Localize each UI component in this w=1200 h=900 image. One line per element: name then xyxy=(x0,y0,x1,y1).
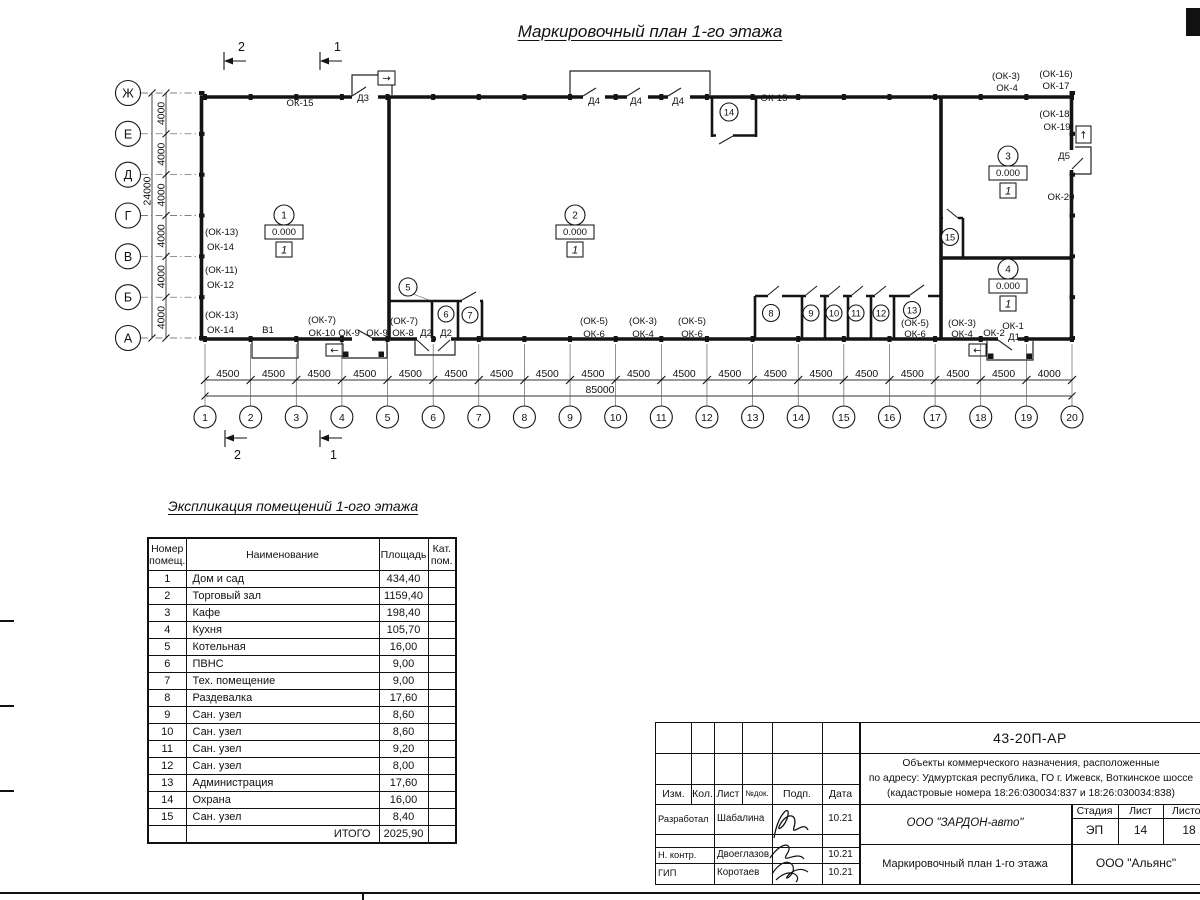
opening-label: Д3 xyxy=(357,93,369,104)
wall-joint-ticks xyxy=(199,91,1075,342)
role-gip-label: ГИП xyxy=(658,864,714,882)
room-schedule-table: Номер помещ. Наименование Площадь Кат. п… xyxy=(147,537,457,844)
porch-post xyxy=(379,352,385,358)
elevation-value: 0.000 xyxy=(996,168,1020,179)
room-category-cell xyxy=(428,809,456,826)
room-number-cell: 2 xyxy=(148,588,186,605)
wall-tick xyxy=(796,94,800,100)
room-number-cell: 8 xyxy=(148,690,186,707)
wall-tick xyxy=(887,94,891,100)
opening-label: (ОК-3) xyxy=(948,318,976,329)
wall-tick xyxy=(887,336,891,342)
axis-number: 5 xyxy=(385,413,391,424)
porch-d5 xyxy=(1075,147,1091,174)
wall-tick xyxy=(1070,173,1076,177)
room-category-cell xyxy=(428,673,456,690)
opening-label: Д2 xyxy=(440,328,452,339)
dim-total-value: 85000 xyxy=(586,385,615,396)
axis-number: 6 xyxy=(430,413,436,424)
axis-number: 2 xyxy=(248,413,254,424)
room-number-cell: 11 xyxy=(148,741,186,758)
room-category-cell xyxy=(428,622,456,639)
room-category-cell xyxy=(428,724,456,741)
dim-label: 4000 xyxy=(157,142,168,165)
sheet-col-header: Лист xyxy=(714,784,742,804)
section-number: 2 xyxy=(234,448,241,462)
opening-label: ОК-6 xyxy=(904,329,926,340)
opening-label: ОК-14 xyxy=(207,242,235,253)
schedule-row: 1Дом и сад434,40 xyxy=(148,571,456,588)
dim-label: 4500 xyxy=(262,369,285,380)
wall-tick xyxy=(614,94,618,100)
section-number: 1 xyxy=(334,40,341,54)
dim-label: 4500 xyxy=(673,369,696,380)
arrow-up-icon: ↑ xyxy=(1079,131,1087,142)
axis-number: 9 xyxy=(567,413,573,424)
schedule-row: 6ПВНС9,00 xyxy=(148,656,456,673)
dim-label: 4500 xyxy=(627,369,650,380)
opening-label: В1 xyxy=(262,325,274,336)
axis-letter: Е xyxy=(124,127,132,141)
wall-tick xyxy=(842,336,846,342)
opening-label: ОК-10 xyxy=(309,328,336,339)
axis-number: 20 xyxy=(1066,413,1078,424)
section-arrowhead-icon xyxy=(320,58,329,65)
room-name-cell: Дом и сад xyxy=(186,571,379,588)
axis-number: 10 xyxy=(610,413,622,424)
dim-label: 4000 xyxy=(157,183,168,206)
dim-label: 4500 xyxy=(764,369,787,380)
section-arrowhead-icon xyxy=(224,58,233,65)
document-number: 43-20П-АР xyxy=(859,723,1200,753)
opening-label: (ОК-5) xyxy=(678,316,706,327)
axis-number: 3 xyxy=(293,413,299,424)
room-category-cell xyxy=(428,605,456,622)
opening-label: (ОК-7) xyxy=(390,316,418,327)
floor-plan-drawing: → ← ← ↑ ОК-15 Д3 Д4 Д4 Д4 ОК-15 (ОК-3) О… xyxy=(0,0,1200,470)
schedule-row: 15Сан. узел8,40 xyxy=(148,809,456,826)
wall-tick xyxy=(568,336,572,342)
room-name-cell: Кафе xyxy=(186,605,379,622)
axis-letter: Д xyxy=(124,168,133,182)
schedule-row: 13Администрация17,60 xyxy=(148,775,456,792)
axis-letter: Б xyxy=(124,291,132,305)
wall-tick xyxy=(705,336,709,342)
schedule-total-row: ИТОГО 2025,90 xyxy=(148,826,456,844)
exit-sign-bottom-left: ← xyxy=(326,344,343,357)
opening-label: ОК-19 xyxy=(1044,122,1071,133)
axis-number: 8 xyxy=(522,413,528,424)
wall-tick xyxy=(477,94,481,100)
room-area-cell: 8,40 xyxy=(379,809,428,826)
wall-tick xyxy=(979,336,983,342)
schedule-cell xyxy=(428,826,456,844)
room-number: 10 xyxy=(829,308,839,318)
section-marker-1-top: 1 xyxy=(320,40,342,70)
opening-label: (ОК-11) xyxy=(205,265,238,276)
wall-tick xyxy=(1070,295,1076,299)
wall-tick xyxy=(522,94,526,100)
room-number: 1 xyxy=(281,211,287,222)
axis-number: 4 xyxy=(339,413,345,424)
dim-label: 4000 xyxy=(157,306,168,329)
section-arrowhead-icon xyxy=(320,435,329,442)
client-company: ООО "ЗАРДОН-авто" xyxy=(859,804,1071,844)
room-area-cell: 105,70 xyxy=(379,622,428,639)
small-room-markers: 56789101112131415 xyxy=(399,103,959,323)
dim-label: 4000 xyxy=(157,102,168,125)
wall-tick xyxy=(659,336,663,342)
room-category-cell xyxy=(428,639,456,656)
room-name-cell: Торговый зал xyxy=(186,588,379,605)
room-number: 12 xyxy=(876,308,886,318)
opening-label: (ОК-5) xyxy=(901,318,929,329)
room-number: 9 xyxy=(808,308,813,318)
door-leaf-room14 xyxy=(719,136,733,144)
axis-number: 14 xyxy=(792,413,804,424)
arrow-left-icon: ← xyxy=(330,346,338,357)
room-name-cell: Сан. узел xyxy=(186,707,379,724)
wall-tick xyxy=(751,336,755,342)
dim-label: 4500 xyxy=(444,369,467,380)
dim-label: 4500 xyxy=(536,369,559,380)
opening-label: ОК-4 xyxy=(951,329,973,340)
wall-tick xyxy=(199,254,205,258)
elevation-value: 0.000 xyxy=(563,227,587,238)
wall-tick xyxy=(1070,91,1076,95)
dim-label: 4500 xyxy=(992,369,1015,380)
wall-tick xyxy=(933,94,937,100)
room-area-cell: 8,00 xyxy=(379,758,428,775)
wall-tick xyxy=(199,91,205,95)
section-number: 2 xyxy=(238,40,245,54)
dim-label: 4500 xyxy=(718,369,741,380)
project-description-line: (кадастровые номера 18:26:030034:837 и 1… xyxy=(861,786,1200,801)
room-name-cell: Сан. узел xyxy=(186,741,379,758)
drawing-sheet: Маркировочный план 1-го этажа xyxy=(0,0,1200,900)
dim-label: 4500 xyxy=(308,369,331,380)
dim-label: 4500 xyxy=(946,369,969,380)
dim-total-value: 24000 xyxy=(143,176,154,205)
room-area-cell: 1159,40 xyxy=(379,588,428,605)
room-category-cell xyxy=(428,656,456,673)
frame-tick xyxy=(0,705,14,707)
signatures xyxy=(760,800,830,885)
opening-label: ОК-14 xyxy=(207,325,235,336)
porch-post xyxy=(343,352,349,358)
room-name-cell: Сан. узел xyxy=(186,724,379,741)
opening-label: ОК-9 xyxy=(366,328,388,339)
axis-letter: В xyxy=(124,250,132,264)
schedule-row: 11Сан. узел9,20 xyxy=(148,741,456,758)
room-name-cell: ПВНС xyxy=(186,656,379,673)
opening-labels: ОК-15 Д3 Д4 Д4 Д4 ОК-15 (ОК-3) ОК-4 (ОК-… xyxy=(205,69,1074,343)
stage-label: Стадия xyxy=(1071,804,1118,818)
room-marker-4: 4 0.000 1 xyxy=(989,259,1027,311)
opening-label: (ОК-3) xyxy=(992,71,1020,82)
room-number-cell: 15 xyxy=(148,809,186,826)
door-leaf-room15 xyxy=(947,209,958,218)
opening-label: (ОК-18) xyxy=(1039,109,1072,120)
project-description-line: Объекты коммерческого назначения, распол… xyxy=(861,756,1200,771)
opening-label: ОК-15 xyxy=(761,93,788,104)
opening-label: (ОК-13) xyxy=(205,227,238,238)
schedule-row: 3Кафе198,40 xyxy=(148,605,456,622)
exit-sign-d5: ↑ xyxy=(1076,126,1091,143)
opening-label: ОК-20 xyxy=(1048,192,1075,203)
frame-tick xyxy=(0,620,14,622)
finish-type: 1 xyxy=(1005,299,1011,311)
opening-label: (ОК-5) xyxy=(580,316,608,327)
schedule-row: 14Охрана16,00 xyxy=(148,792,456,809)
room-number: 8 xyxy=(768,308,773,318)
opening-label: (ОК-7) xyxy=(308,315,336,326)
room-number: 7 xyxy=(467,310,472,320)
opening-label: ОК-4 xyxy=(996,83,1018,94)
schedule-row: 10Сан. узел8,60 xyxy=(148,724,456,741)
axis-number: 7 xyxy=(476,413,482,424)
revision-col-header: Изм. xyxy=(656,784,691,804)
room-number-cell: 3 xyxy=(148,605,186,622)
bottom-axis-grid: 85000 1450024500345004450054500645007450… xyxy=(194,344,1083,428)
door-leaves-rooms-8-13 xyxy=(768,285,924,295)
door-leaves-d4 xyxy=(583,88,681,96)
wall-tick xyxy=(933,336,937,342)
opening-label: Д5 xyxy=(1058,151,1070,162)
axis-number: 18 xyxy=(975,413,987,424)
frame-tick xyxy=(362,892,364,900)
axis-number: 17 xyxy=(929,413,941,424)
wall-tick xyxy=(431,94,435,100)
porch-post xyxy=(1027,354,1033,360)
role-developed-label: Разработал xyxy=(658,809,714,829)
porch-post xyxy=(988,354,994,360)
room-category-cell xyxy=(428,792,456,809)
axis-letter: Ж xyxy=(122,87,134,101)
room-marker-2: 2 0.000 1 xyxy=(556,205,594,257)
room-area-cell: 16,00 xyxy=(379,792,428,809)
dim-label: 4500 xyxy=(901,369,924,380)
room-category-cell xyxy=(428,690,456,707)
section-number: 1 xyxy=(330,448,337,462)
room-number-cell: 4 xyxy=(148,622,186,639)
opening-label: ОК-4 xyxy=(632,329,654,340)
wall-tick xyxy=(842,94,846,100)
room-number-cell: 9 xyxy=(148,707,186,724)
dim-label: 4000 xyxy=(157,265,168,288)
room-area-cell: 9,00 xyxy=(379,656,428,673)
dim-label: 4500 xyxy=(399,369,422,380)
opening-label: (ОК-13) xyxy=(205,310,238,321)
schedule-header-area: Площадь xyxy=(379,538,428,571)
room-area-cell: 8,60 xyxy=(379,724,428,741)
section-arrowhead-icon xyxy=(225,435,234,442)
dim-label: 4500 xyxy=(809,369,832,380)
wall-tick xyxy=(1024,94,1028,100)
schedule-title: Экспликация помещений 1-ого этажа xyxy=(168,498,418,514)
opening-label: ОК-15 xyxy=(287,98,314,109)
axis-number: 15 xyxy=(838,413,850,424)
room-number: 2 xyxy=(572,211,578,222)
dim-label: 4500 xyxy=(216,369,239,380)
axis-number: 13 xyxy=(747,413,759,424)
room-name-cell: Охрана xyxy=(186,792,379,809)
wall-tick xyxy=(386,94,390,100)
opening-label: (ОК-3) xyxy=(629,316,657,327)
axis-letter: Г xyxy=(125,209,132,223)
room-area-cell: 17,60 xyxy=(379,775,428,792)
dim-label: 4000 xyxy=(1038,369,1061,380)
wall-tick xyxy=(751,94,755,100)
wall-tick xyxy=(199,295,205,299)
axis-number: 12 xyxy=(701,413,713,424)
door-leaves xyxy=(352,87,1083,351)
room-area-cell: 434,40 xyxy=(379,571,428,588)
interior-walls xyxy=(389,96,1071,340)
wall-tick xyxy=(199,132,205,136)
wall-tick xyxy=(614,336,618,342)
porches xyxy=(252,71,1091,360)
room-number-cell: 1 xyxy=(148,571,186,588)
schedule-header-row: Номер помещ. Наименование Площадь Кат. п… xyxy=(148,538,456,571)
room-number: 4 xyxy=(1005,265,1011,276)
room-area-cell: 8,60 xyxy=(379,707,428,724)
room-category-cell xyxy=(428,588,456,605)
schedule-row: 9Сан. узел8,60 xyxy=(148,707,456,724)
count-col-header: Кол. xyxy=(691,784,714,804)
room-number: 3 xyxy=(1005,152,1011,163)
opening-label: ОК-17 xyxy=(1043,81,1070,92)
opening-label: ОК-6 xyxy=(583,329,605,340)
left-axis-grid: 24000 Ж4000Е4000Д4000Г4000В4000Б4000А xyxy=(116,81,200,351)
opening-label: Д1 xyxy=(1008,332,1020,343)
frame-corner-mark xyxy=(1186,8,1200,36)
opening-label: (ОК-16) xyxy=(1039,69,1072,80)
wall-tick xyxy=(249,336,253,342)
role-ncontrol-label: Н. контр. xyxy=(658,847,714,863)
opening-label: Д4 xyxy=(630,96,642,107)
frame-bottom-edge xyxy=(0,892,1200,894)
wall-tick xyxy=(568,94,572,100)
signature-korotaev xyxy=(772,862,808,882)
schedule-row: 7Тех. помещение9,00 xyxy=(148,673,456,690)
elevation-value: 0.000 xyxy=(996,281,1020,292)
room-marker-3: 3 0.000 1 xyxy=(989,146,1027,198)
opening-label: ОК-6 xyxy=(681,329,703,340)
sheets-label: Листов xyxy=(1163,804,1200,818)
room-number-cell: 10 xyxy=(148,724,186,741)
dim-label: 4500 xyxy=(581,369,604,380)
schedule-row: 8Раздевалка17,60 xyxy=(148,690,456,707)
wall-tick xyxy=(477,336,481,342)
sheet-number: 14 xyxy=(1118,818,1163,844)
project-description-line: по адресу: Удмуртская республика, ГО г. … xyxy=(861,771,1200,786)
sheet-label: Лист xyxy=(1118,804,1163,818)
room-name-cell: Сан. узел xyxy=(186,758,379,775)
room-area-cell: 16,00 xyxy=(379,639,428,656)
room-area-cell: 9,20 xyxy=(379,741,428,758)
room-marker-1: 1 0.000 1 xyxy=(265,205,303,257)
room-name-cell: Котельная xyxy=(186,639,379,656)
schedule-row: 12Сан. узел8,00 xyxy=(148,758,456,775)
room-category-cell xyxy=(428,741,456,758)
finish-type: 1 xyxy=(572,245,578,257)
room-name-cell: Раздевалка xyxy=(186,690,379,707)
wall-tick xyxy=(796,336,800,342)
sheet-title: Маркировочный план 1-го этажа xyxy=(859,844,1071,884)
room-number: 15 xyxy=(945,232,955,242)
schedule-row: 5Котельная16,00 xyxy=(148,639,456,656)
room-number-cell: 7 xyxy=(148,673,186,690)
room-area-cell: 17,60 xyxy=(379,690,428,707)
room-category-cell xyxy=(428,571,456,588)
exit-sign-d3: → xyxy=(378,71,395,85)
dim-label: 4500 xyxy=(490,369,513,380)
axis-number: 1 xyxy=(202,413,208,424)
room-area-cell: 9,00 xyxy=(379,673,428,690)
exit-sign-bottom-right: ← xyxy=(969,344,986,357)
dim-label: 4500 xyxy=(353,369,376,380)
schedule-total-label: ИТОГО xyxy=(186,826,379,844)
room-area-cell: 198,40 xyxy=(379,605,428,622)
wall-tick xyxy=(705,94,709,100)
sheets-total: 18 xyxy=(1163,818,1200,844)
opening-label: Д2 xyxy=(420,328,432,339)
room-number-cell: 13 xyxy=(148,775,186,792)
titleblock-line xyxy=(656,753,1200,754)
room5-leader-line xyxy=(413,294,429,300)
signature-shabalina xyxy=(774,811,808,838)
schedule-header-category: Кат. пом. xyxy=(428,538,456,571)
wall-tick xyxy=(1070,213,1076,217)
wall-tick xyxy=(1070,336,1076,340)
axis-number: 19 xyxy=(1021,413,1033,424)
opening-label: Д4 xyxy=(672,96,684,107)
wall-tick xyxy=(1024,336,1028,342)
room-number-cell: 6 xyxy=(148,656,186,673)
wall-tick xyxy=(1070,254,1076,258)
room-number-cell: 12 xyxy=(148,758,186,775)
schedule-header-name: Наименование xyxy=(186,538,379,571)
opening-label: ОК-12 xyxy=(207,280,234,291)
design-org: ООО "Альянс" xyxy=(1071,844,1200,884)
wall-tick xyxy=(522,336,526,342)
wall-tick xyxy=(199,173,205,177)
axis-letter: А xyxy=(124,331,133,345)
axis-number: 11 xyxy=(656,413,667,424)
signature-dvoeglazov xyxy=(770,845,804,859)
wall-tick xyxy=(659,94,663,100)
room-number: 6 xyxy=(443,309,448,319)
schedule-cell xyxy=(148,826,186,844)
axis-number: 16 xyxy=(884,413,896,424)
room-category-cell xyxy=(428,775,456,792)
wall-tick xyxy=(340,94,344,100)
frame-tick xyxy=(0,790,14,792)
dim-label: 4000 xyxy=(157,224,168,247)
schedule-header-number: Номер помещ. xyxy=(148,538,186,571)
opening-label: ОК-1 xyxy=(1002,321,1024,332)
finish-type: 1 xyxy=(281,245,287,257)
room-number-cell: 14 xyxy=(148,792,186,809)
title-block: Изм. Кол. Лист №док. Подп. Дата Разработ… xyxy=(655,722,1200,885)
wall-tick xyxy=(294,336,298,342)
schedule-row: 2Торговый зал1159,40 xyxy=(148,588,456,605)
arrow-right-icon: → xyxy=(382,74,390,85)
porch-left-1 xyxy=(252,341,298,358)
dim-label: 4500 xyxy=(855,369,878,380)
section-marker-2-bottom: 2 xyxy=(225,430,247,462)
